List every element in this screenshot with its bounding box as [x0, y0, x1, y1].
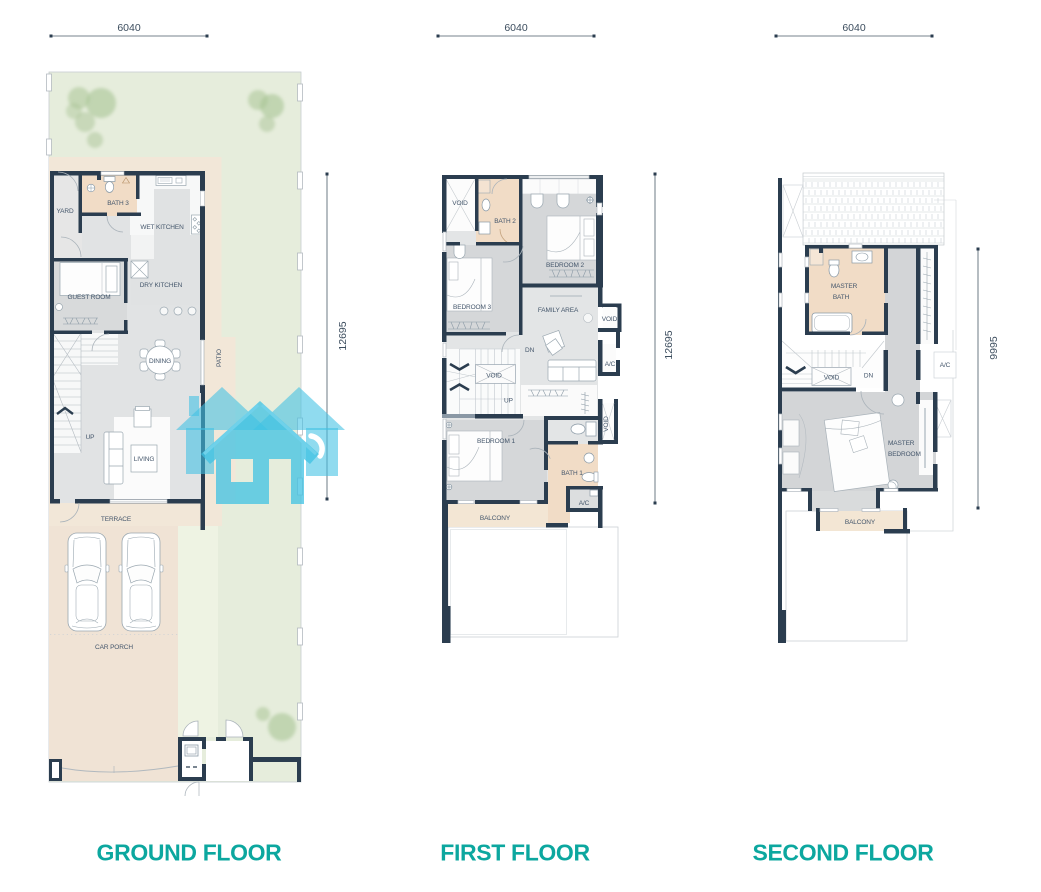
svg-text:A/C: A/C: [605, 361, 616, 368]
svg-text:GUEST ROOM: GUEST ROOM: [67, 294, 110, 301]
svg-text:BEDROOM 3: BEDROOM 3: [453, 304, 491, 311]
svg-text:PATIO: PATIO: [216, 349, 223, 367]
svg-text:DN: DN: [864, 373, 874, 380]
svg-text:6040: 6040: [117, 22, 141, 34]
svg-text:CAR PORCH: CAR PORCH: [95, 644, 133, 651]
svg-text:DRY KITCHEN: DRY KITCHEN: [140, 282, 183, 289]
svg-text:VOID: VOID: [824, 375, 840, 382]
svg-text:YARD: YARD: [56, 208, 74, 215]
svg-text:DINING: DINING: [149, 358, 171, 365]
svg-text:WET KITCHEN: WET KITCHEN: [140, 224, 184, 231]
svg-text:VOID: VOID: [603, 416, 610, 432]
svg-text:BEDROOM: BEDROOM: [888, 451, 921, 458]
svg-text:12695: 12695: [663, 330, 675, 359]
svg-text:MASTER: MASTER: [888, 440, 915, 447]
svg-text:LIVING: LIVING: [134, 456, 155, 463]
svg-text:BALCONY: BALCONY: [845, 519, 876, 526]
svg-text:BATH: BATH: [833, 294, 850, 301]
svg-text:UP: UP: [86, 434, 95, 441]
svg-text:DN: DN: [525, 347, 535, 354]
svg-text:FAMILY AREA: FAMILY AREA: [538, 307, 579, 314]
svg-text:GROUND FLOOR: GROUND FLOOR: [97, 840, 283, 866]
svg-text:6040: 6040: [504, 22, 528, 34]
svg-text:BALCONY: BALCONY: [480, 515, 511, 522]
svg-text:9995: 9995: [988, 336, 1000, 360]
svg-text:BATH 1: BATH 1: [561, 470, 583, 477]
svg-text:BATH 3: BATH 3: [107, 200, 129, 207]
svg-text:TERRACE: TERRACE: [101, 516, 132, 523]
svg-text:6040: 6040: [842, 22, 866, 34]
svg-text:UP: UP: [504, 398, 513, 405]
svg-text:A/C: A/C: [940, 362, 951, 369]
svg-text:VOID: VOID: [452, 200, 468, 207]
svg-text:MASTER: MASTER: [831, 283, 858, 290]
svg-text:BEDROOM 1: BEDROOM 1: [477, 438, 515, 445]
svg-text:BEDROOM 2: BEDROOM 2: [546, 262, 584, 269]
svg-text:SECOND FLOOR: SECOND FLOOR: [752, 840, 934, 866]
svg-text:12695: 12695: [337, 321, 349, 350]
svg-text:VOID: VOID: [486, 373, 502, 380]
svg-text:A/C: A/C: [579, 500, 590, 507]
svg-text:VOID: VOID: [602, 316, 618, 323]
svg-text:BATH 2: BATH 2: [494, 218, 516, 225]
svg-text:FIRST FLOOR: FIRST FLOOR: [440, 840, 590, 866]
